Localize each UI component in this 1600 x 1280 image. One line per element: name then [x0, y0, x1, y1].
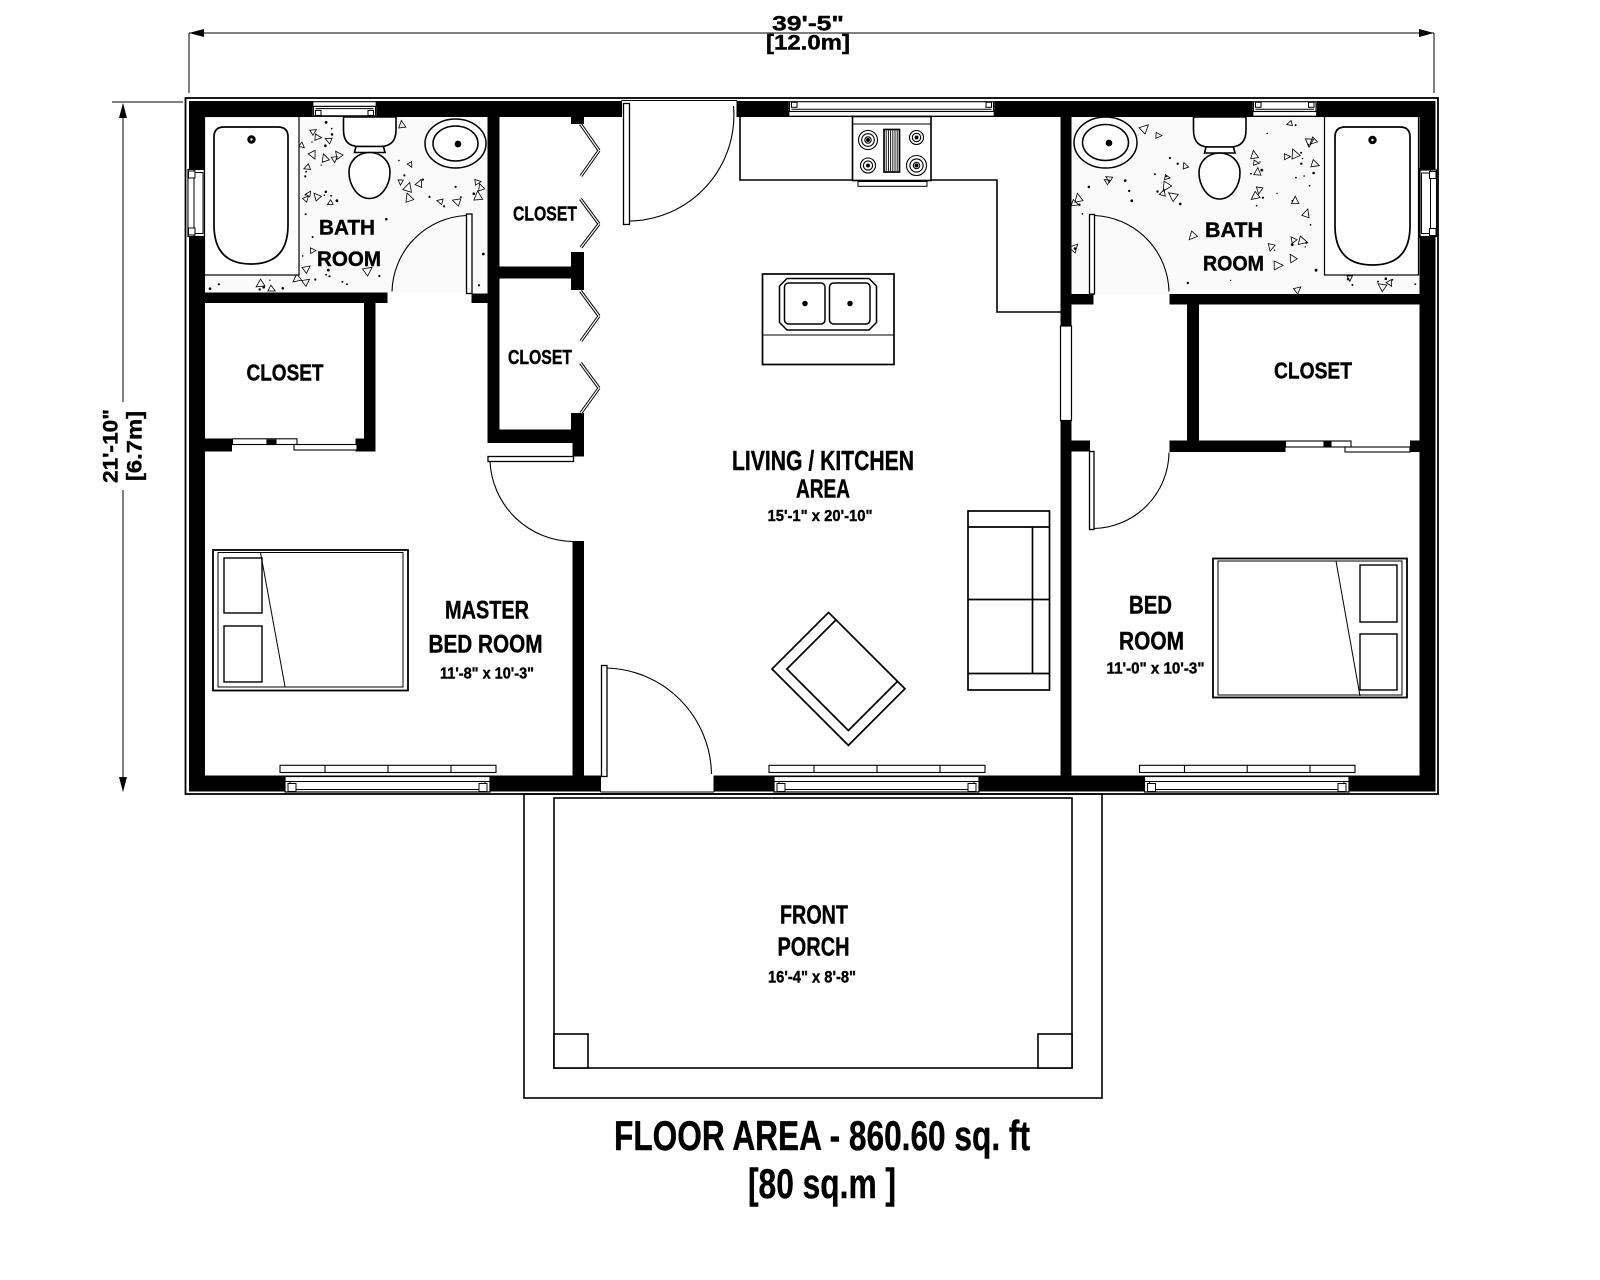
svg-text:LIVING / KITCHEN: LIVING / KITCHEN [732, 445, 914, 476]
svg-text:BED: BED [1129, 592, 1172, 620]
svg-text:ROOM: ROOM [1203, 253, 1264, 276]
svg-text:[80 sq.m ]: [80 sq.m ] [748, 1160, 896, 1207]
svg-text:ROOM: ROOM [1119, 628, 1184, 656]
svg-text:ROOM: ROOM [317, 248, 381, 271]
svg-text:CLOSET: CLOSET [513, 204, 577, 226]
svg-text:BATH: BATH [1205, 219, 1263, 242]
svg-text:[6.7m]: [6.7m] [124, 411, 147, 481]
svg-text:11'-8" x 10'-3": 11'-8" x 10'-3" [440, 666, 534, 683]
svg-text:CLOSET: CLOSET [508, 347, 572, 369]
svg-text:11'-0" x 10'-3": 11'-0" x 10'-3" [1107, 661, 1205, 678]
svg-text:BED ROOM: BED ROOM [429, 631, 543, 659]
svg-text:16'-4" x 8'-8": 16'-4" x 8'-8" [768, 968, 856, 987]
svg-text:[12.0m]: [12.0m] [766, 32, 850, 55]
svg-text:BATH: BATH [319, 217, 375, 240]
svg-text:FRONT: FRONT [780, 900, 848, 930]
svg-text:CLOSET: CLOSET [1274, 358, 1352, 384]
svg-text:FLOOR AREA - 860.60 sq. ft: FLOOR AREA - 860.60 sq. ft [614, 1112, 1030, 1159]
svg-text:PORCH: PORCH [778, 932, 850, 962]
svg-text:MASTER: MASTER [445, 597, 529, 625]
svg-text:21'-10": 21'-10" [100, 409, 123, 483]
svg-text:AREA: AREA [796, 474, 850, 504]
svg-text:15'-1" x 20'-10": 15'-1" x 20'-10" [768, 508, 873, 525]
svg-text:CLOSET: CLOSET [247, 360, 324, 386]
